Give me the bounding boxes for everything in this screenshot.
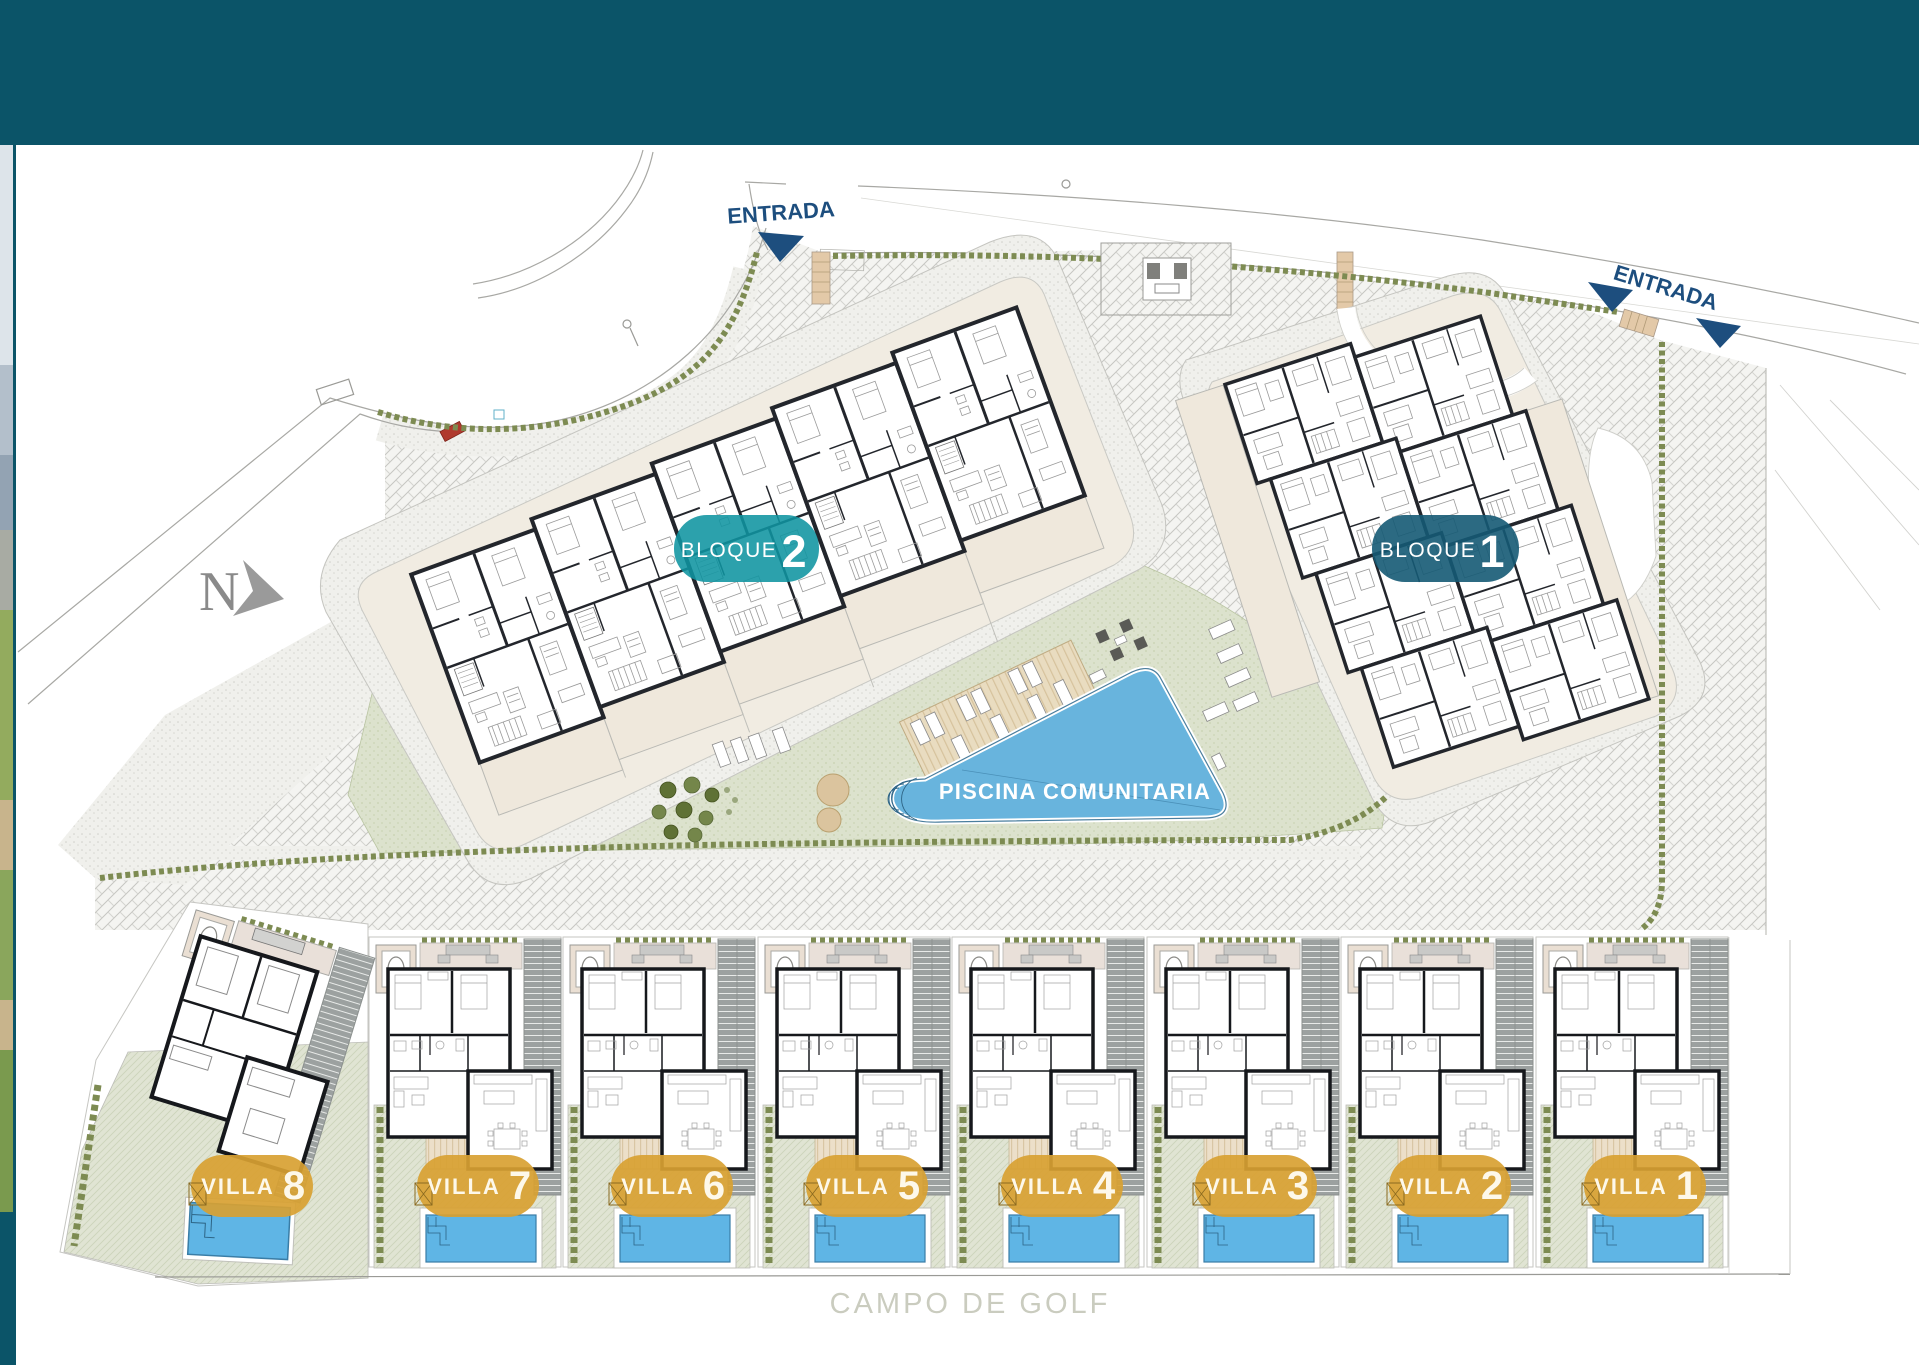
svg-text:6: 6 — [703, 1164, 725, 1208]
svg-text:4: 4 — [1093, 1164, 1116, 1208]
svg-text:CAMPO DE GOLF: CAMPO DE GOLF — [830, 1288, 1111, 1320]
svg-text:3: 3 — [1287, 1164, 1309, 1208]
svg-text:7: 7 — [509, 1164, 531, 1208]
svg-text:N: N — [199, 561, 239, 623]
svg-text:2: 2 — [1481, 1164, 1503, 1208]
svg-text:VILLA: VILLA — [1205, 1174, 1279, 1199]
svg-text:BLOQUE: BLOQUE — [1380, 539, 1477, 562]
svg-text:5: 5 — [898, 1164, 920, 1208]
svg-text:PISCINA COMUNITARIA: PISCINA COMUNITARIA — [939, 779, 1211, 804]
svg-text:VILLA: VILLA — [201, 1174, 275, 1199]
svg-text:2: 2 — [781, 526, 806, 577]
svg-text:VILLA: VILLA — [816, 1174, 890, 1199]
svg-text:VILLA: VILLA — [1399, 1174, 1473, 1199]
svg-text:8: 8 — [283, 1164, 305, 1208]
svg-text:BLOQUE: BLOQUE — [681, 539, 778, 562]
svg-text:VILLA: VILLA — [621, 1174, 695, 1199]
svg-text:VILLA: VILLA — [427, 1174, 501, 1199]
svg-text:1: 1 — [1676, 1164, 1698, 1208]
svg-text:VILLA: VILLA — [1594, 1174, 1668, 1199]
svg-text:VILLA: VILLA — [1011, 1174, 1085, 1199]
svg-text:1: 1 — [1479, 526, 1504, 577]
